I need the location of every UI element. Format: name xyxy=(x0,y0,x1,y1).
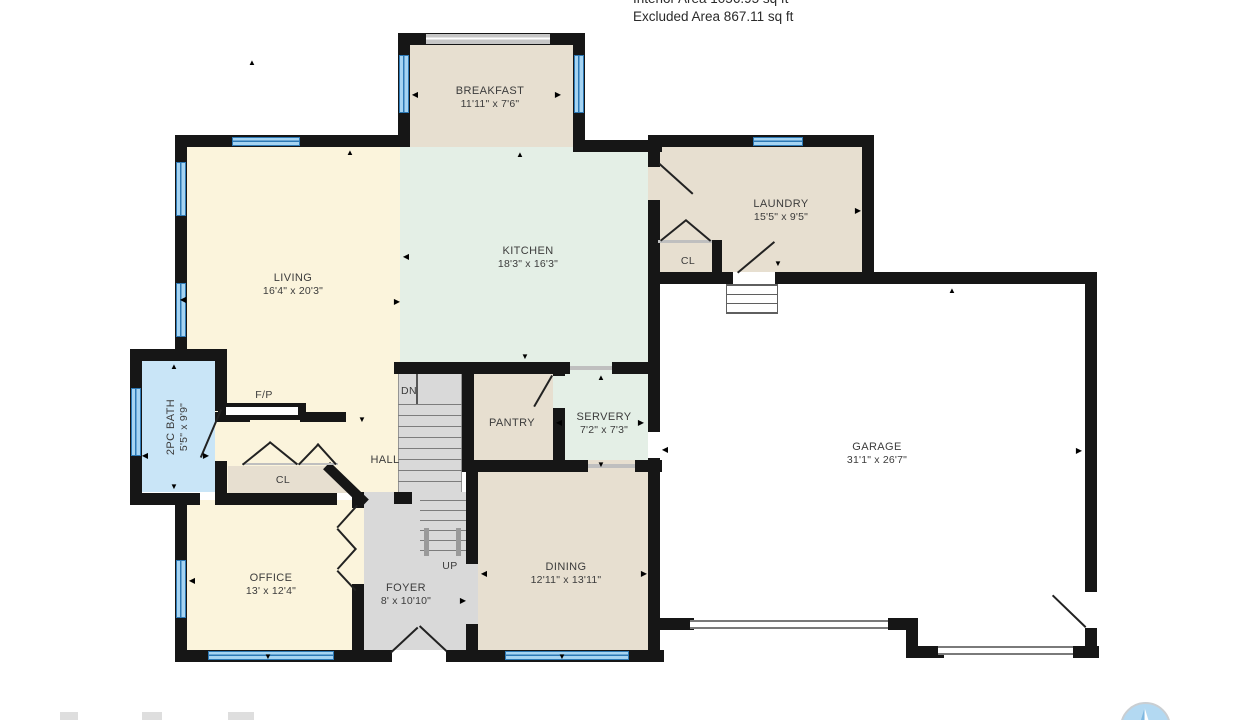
window xyxy=(131,388,141,456)
wall-segment xyxy=(446,650,468,662)
measure-arrow: ▶ xyxy=(555,91,561,99)
measure-arrow: ▲ xyxy=(597,374,605,382)
opening-sill xyxy=(570,366,612,370)
room-label-pantry: PANTRY xyxy=(489,416,535,430)
measure-arrow: ◀ xyxy=(662,446,668,454)
garage-entry-steps xyxy=(726,284,778,314)
stairs-down-treads xyxy=(398,404,462,492)
room-dims: 18'3" x 16'3" xyxy=(498,258,558,272)
wall-segment xyxy=(215,493,337,505)
room-label-laundry-closet: CL xyxy=(681,255,695,269)
room-label-dining: DINING 12'11" x 13'11" xyxy=(531,560,602,588)
wall-segment xyxy=(656,618,694,630)
room-dims: 8' x 10'10" xyxy=(381,595,431,609)
room-label-office: OFFICE 13' x 12'4" xyxy=(246,571,296,599)
fireplace-label: F/P xyxy=(255,389,273,403)
wall-segment xyxy=(648,135,660,167)
measure-arrow: ▲ xyxy=(948,287,956,295)
measure-arrow: ▼ xyxy=(558,653,566,661)
room-label-foyer: FOYER 8' x 10'10" xyxy=(381,581,431,609)
room-name: LIVING xyxy=(263,271,323,285)
room-label-bath: 2PC BATH 5'5" x 9'9" xyxy=(164,399,192,455)
measure-arrow: ▲ xyxy=(516,151,524,159)
closet-track xyxy=(242,463,338,465)
measure-arrow: ▼ xyxy=(521,353,529,361)
garage-door xyxy=(938,646,1073,655)
closet-track xyxy=(658,240,712,243)
room-label-hall: HALL xyxy=(370,453,399,467)
wall-segment xyxy=(394,492,412,504)
floorplan-canvas: ▲ ◀ ▶ ▲ ▲ ◀ ◀ ▶ ▶ ▼ ▲ ▶ ▼ ▲ ◀ ▶ ▼ ◀ ▼ ▲ … xyxy=(0,0,1240,720)
room-label-garage: GARAGE 31'1" x 26'7" xyxy=(847,440,907,468)
room-name: KITCHEN xyxy=(498,244,558,258)
window xyxy=(505,651,629,660)
measure-arrow: ▼ xyxy=(597,461,605,469)
window xyxy=(176,162,186,216)
measure-arrow: ◀ xyxy=(556,419,562,427)
room-label-breakfast: BREAKFAST 11'11" x 7'6" xyxy=(456,84,524,112)
stairs-label: DN xyxy=(401,385,417,399)
measure-arrow: ◀ xyxy=(180,296,186,304)
wall-segment xyxy=(462,460,588,472)
measure-arrow: ▶ xyxy=(460,597,466,605)
iguide-compass-logo-icon xyxy=(1120,702,1171,720)
wall-segment xyxy=(862,135,874,284)
measure-arrow: ▼ xyxy=(170,483,178,491)
measure-arrow: ▼ xyxy=(358,416,366,424)
measure-arrow: ▲ xyxy=(170,363,178,371)
room-name: HALL xyxy=(370,453,399,467)
window xyxy=(232,137,300,146)
room-dims: 15'5" x 9'5" xyxy=(753,211,808,225)
measure-arrow: ▲ xyxy=(346,149,354,157)
window xyxy=(753,137,803,146)
bay-window-cap xyxy=(550,33,558,45)
measure-arrow: ◀ xyxy=(481,570,487,578)
measure-arrow: ▶ xyxy=(1076,447,1082,455)
room-label-living: LIVING 16'4" x 20'3" xyxy=(263,271,323,299)
lower-floor-peek xyxy=(60,712,78,720)
room-name: FOYER xyxy=(381,581,431,595)
wall-segment xyxy=(648,200,660,374)
wall-segment xyxy=(466,624,478,662)
wall-segment xyxy=(553,362,565,376)
stairs-down-label: DN xyxy=(401,385,417,399)
stairs-up-rail-post xyxy=(424,528,429,556)
measure-arrow: ▼ xyxy=(774,260,782,268)
lower-floor-peek xyxy=(228,712,254,720)
interior-area-text: Interior Area 1056.95 sq ft xyxy=(633,0,788,6)
opening-sill xyxy=(588,464,635,468)
room-name: OFFICE xyxy=(246,571,296,585)
wall-segment xyxy=(362,650,392,662)
room-label-laundry: LAUNDRY 15'5" x 9'5" xyxy=(753,197,808,225)
room-name: SERVERY xyxy=(577,410,632,424)
wall-segment xyxy=(466,462,478,564)
room-name: LAUNDRY xyxy=(753,197,808,211)
measure-arrow: ▶ xyxy=(203,452,209,460)
wall-segment xyxy=(394,362,570,374)
wall-segment xyxy=(215,461,227,505)
door-swing-line xyxy=(1052,595,1086,628)
stairs-up-rail-post xyxy=(456,528,461,556)
stairs-label: UP xyxy=(442,560,457,574)
wall-segment xyxy=(906,618,918,658)
room-dims: 11'11" x 7'6" xyxy=(456,98,524,112)
stairs-up-label: UP xyxy=(442,560,457,574)
wall-segment xyxy=(1085,628,1097,658)
measure-arrow: ▶ xyxy=(394,298,400,306)
window xyxy=(176,560,186,618)
wall-segment xyxy=(648,374,660,432)
excluded-area-text: Excluded Area 867.11 sq ft xyxy=(633,9,793,24)
wall-segment xyxy=(462,362,474,472)
measure-arrow: ▼ xyxy=(264,653,272,661)
measure-arrow: ◀ xyxy=(412,91,418,99)
window xyxy=(574,55,584,113)
room-name: PANTRY xyxy=(489,416,535,430)
room-name: GARAGE xyxy=(847,440,907,454)
room-dims: 13' x 12'4" xyxy=(246,585,296,599)
room-name: DINING xyxy=(531,560,602,574)
measure-arrow: ▶ xyxy=(855,207,861,215)
measure-arrow: ▶ xyxy=(638,419,644,427)
logo-sail-right xyxy=(1122,704,1169,720)
wall-segment xyxy=(775,272,1097,284)
room-dims: 16'4" x 20'3" xyxy=(263,285,323,299)
room-name: 2PC BATH xyxy=(164,399,178,455)
wall-segment xyxy=(352,584,364,662)
fireplace-slot xyxy=(226,407,298,415)
measure-arrow: ◀ xyxy=(403,253,409,261)
room-name: BREAKFAST xyxy=(456,84,524,98)
lower-floor-peek xyxy=(142,712,162,720)
room-name: F/P xyxy=(255,389,273,403)
wall-segment xyxy=(1085,272,1097,592)
wall-segment xyxy=(712,240,722,274)
wall-segment xyxy=(648,458,660,662)
room-dims: 5'5" x 9'9" xyxy=(178,399,192,455)
room-dims: 12'11" x 13'11" xyxy=(531,574,602,588)
room-label-servery: SERVERY 7'2" x 7'3" xyxy=(577,410,632,438)
measure-arrow: ◀ xyxy=(189,577,195,585)
bay-window xyxy=(426,34,550,44)
wall-segment xyxy=(215,349,227,411)
bay-window-cap xyxy=(418,33,426,45)
garage-door xyxy=(690,620,888,629)
measure-arrow: ▲ xyxy=(248,59,256,67)
foyer-dining-opening xyxy=(466,564,478,624)
room-name: CL xyxy=(681,255,695,269)
room-dims: 31'1" x 26'7" xyxy=(847,454,907,468)
wall-segment xyxy=(300,412,346,422)
servery-door-floor xyxy=(553,376,565,408)
window xyxy=(176,283,186,337)
measure-arrow: ◀ xyxy=(142,452,148,460)
room-label-hall-closet: CL xyxy=(276,474,290,488)
room-dims: 7'2" x 7'3" xyxy=(577,424,632,438)
measure-arrow: ▶ xyxy=(641,570,647,578)
room-label-kitchen: KITCHEN 18'3" x 16'3" xyxy=(498,244,558,272)
room-name: CL xyxy=(276,474,290,488)
window xyxy=(399,55,409,113)
laundry-door-floor xyxy=(648,165,660,200)
